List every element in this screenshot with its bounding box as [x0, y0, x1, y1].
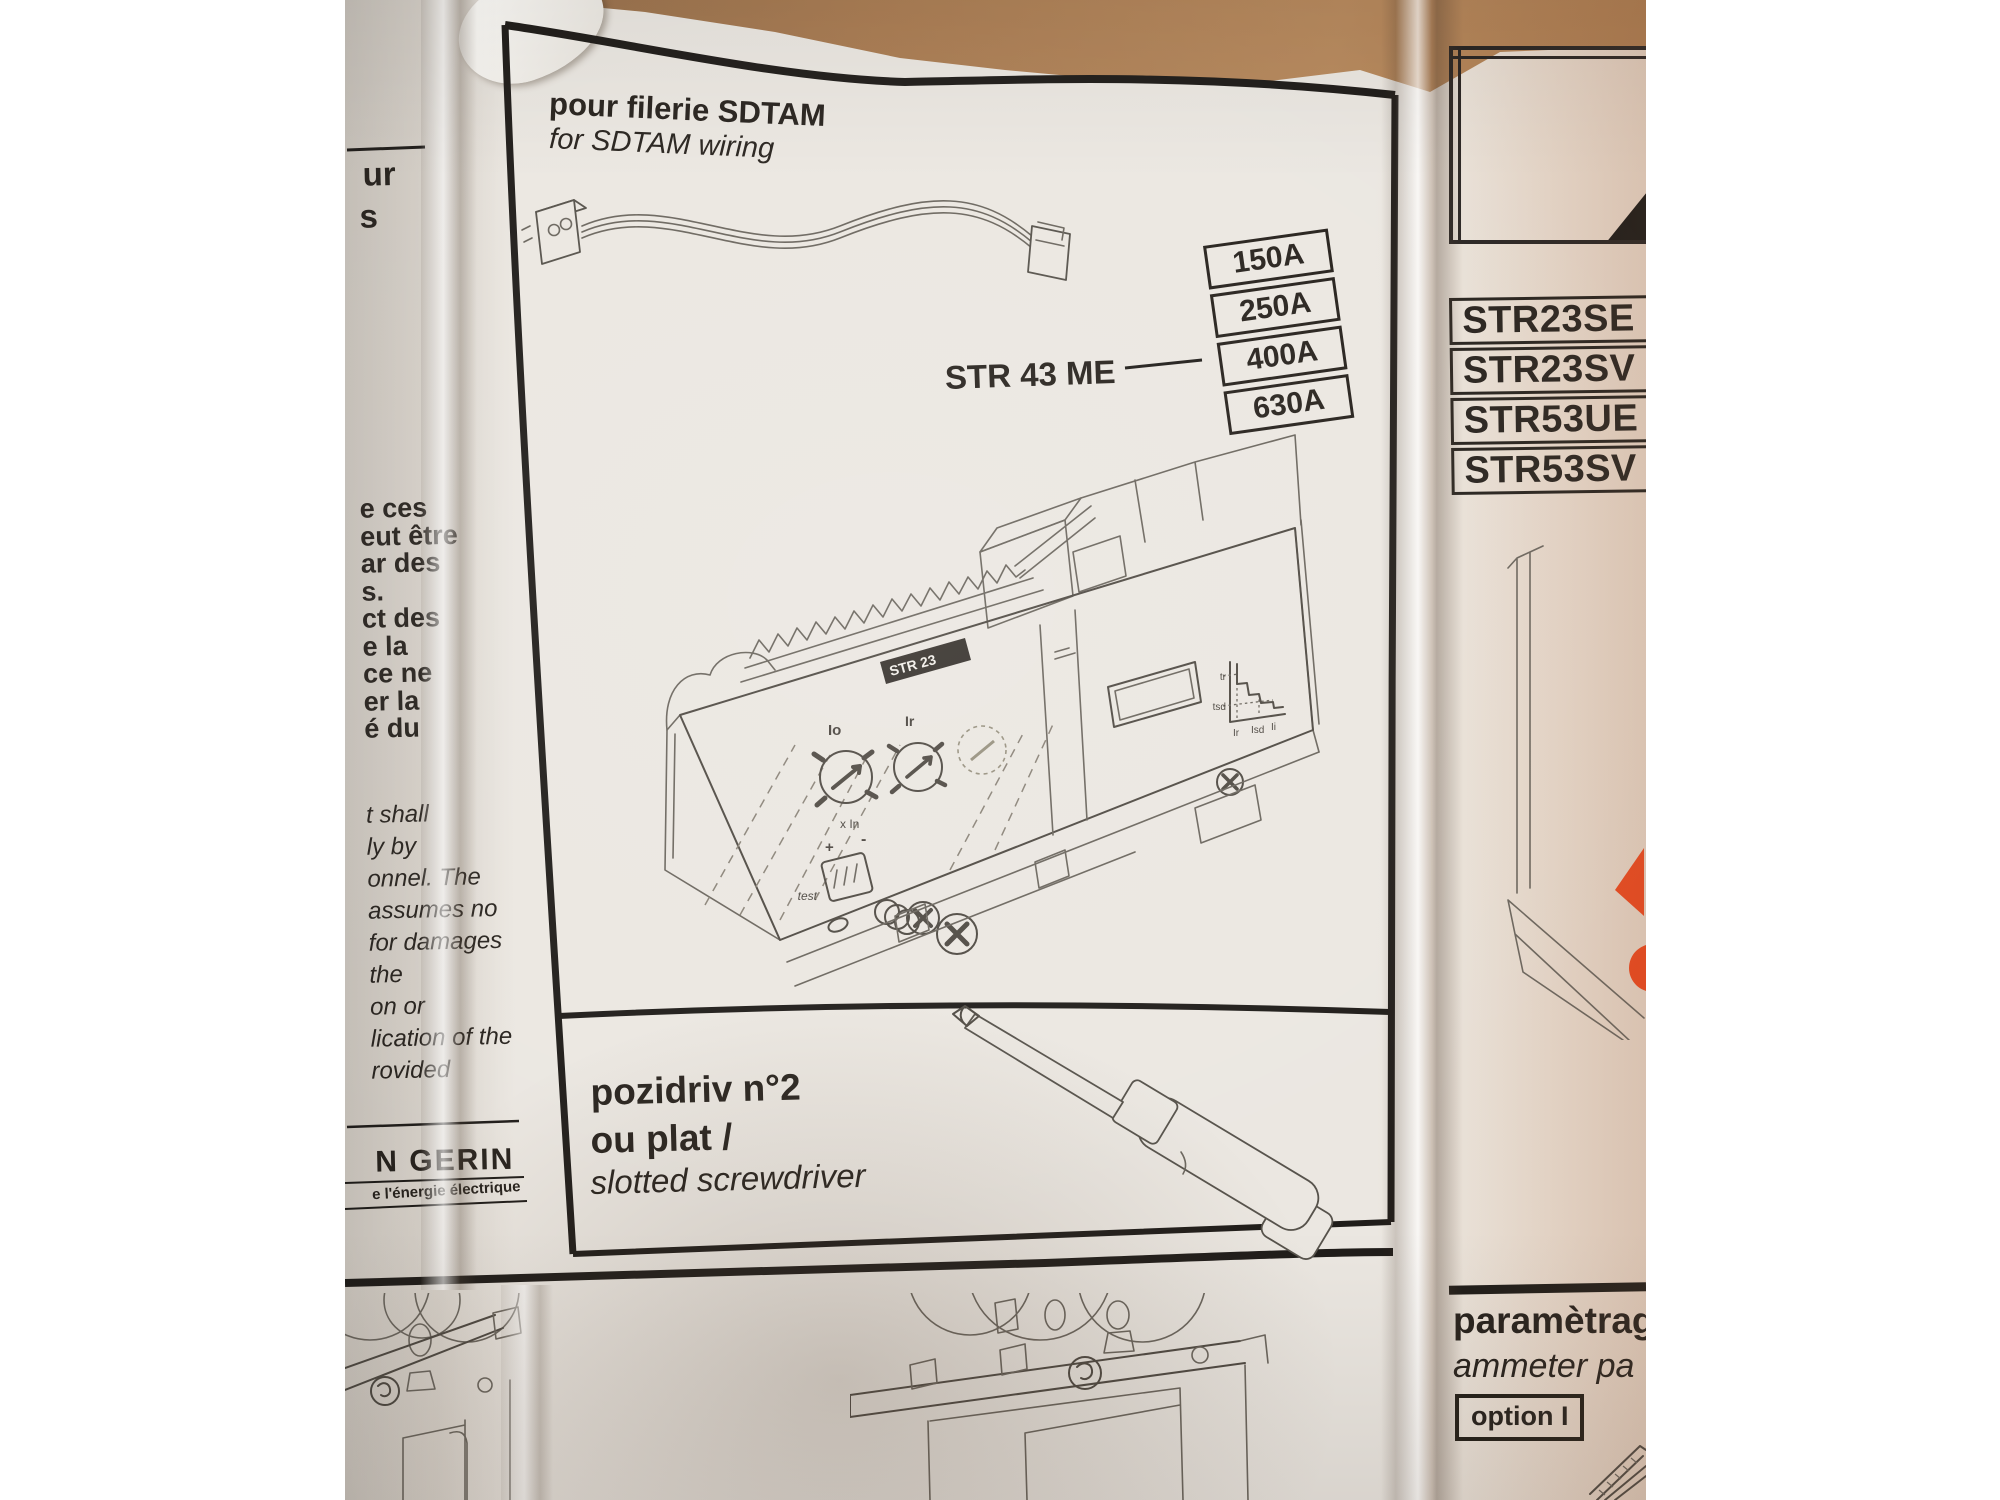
model-list: STR23SE STR23SV STR53UE STR53SV: [1449, 295, 1646, 498]
trip-unit-illustration: STR 23 Io x In Ir: [495, 400, 1345, 1012]
breaker-bottom-center-illustration: [850, 1293, 1280, 1500]
svg-text:tsd: tsd: [1213, 702, 1226, 713]
fold-crease-right: [1381, 0, 1463, 1500]
trip-curve-graph: tr tsd Ir Isd Ii: [1213, 662, 1285, 739]
svg-text:Ii: Ii: [1271, 722, 1276, 733]
screenshot-canvas: ur s e ces eut être ar des s. ct des e l…: [0, 0, 2000, 1500]
param-heading-en: ammeter pa: [1453, 1347, 1634, 1386]
model-row: STR23SE: [1449, 295, 1646, 345]
tool-title-en: slotted screwdriver: [590, 1157, 866, 1202]
fold-crease-bottom: [501, 1285, 553, 1500]
screwdriver-illustration: [945, 1000, 1345, 1260]
right-panel-separator: [1449, 240, 1646, 244]
tool-title-fr: pozidriv n°2: [590, 1067, 801, 1114]
test-plus: +: [825, 839, 834, 856]
corner-stack-illustration: [1585, 1432, 1646, 1500]
test-minus: -: [861, 831, 866, 848]
dial-io: [814, 751, 876, 805]
dial-ir-label: Ir: [905, 713, 915, 729]
red-arrow: [1615, 848, 1644, 916]
left-top-fragment: ur: [362, 155, 396, 194]
model-row: STR23SV: [1450, 345, 1646, 395]
param-heading-fr: paramètrag: [1453, 1300, 1646, 1342]
model-label: STR 43 ME: [944, 353, 1116, 397]
tool-title-fr2: ou plat /: [590, 1116, 733, 1162]
dial-io-label: Io: [828, 722, 841, 739]
left-top-fragment2: s: [359, 197, 378, 235]
dial-faint: [958, 726, 1006, 774]
test-label: test: [798, 889, 818, 903]
dial-io-sub: x In: [840, 817, 859, 831]
dial-ir: [889, 743, 945, 792]
option-badge: option I: [1455, 1394, 1584, 1441]
model-row: STR53UE: [1450, 395, 1646, 445]
sdtam-cable-illustration: [520, 130, 1120, 300]
right-panel-top-border: [1451, 46, 1646, 59]
svg-text:Isd: Isd: [1251, 725, 1264, 736]
leaflet-photo: ur s e ces eut être ar des s. ct des e l…: [345, 0, 1646, 1500]
svg-text:tr: tr: [1220, 672, 1227, 683]
insertion-guide-illustration: [1503, 538, 1646, 1040]
fold-crease-left: [421, 0, 477, 1290]
svg-text:Ir: Ir: [1233, 728, 1240, 739]
model-row: STR53SV: [1451, 445, 1646, 495]
red-disc: [1629, 944, 1646, 992]
